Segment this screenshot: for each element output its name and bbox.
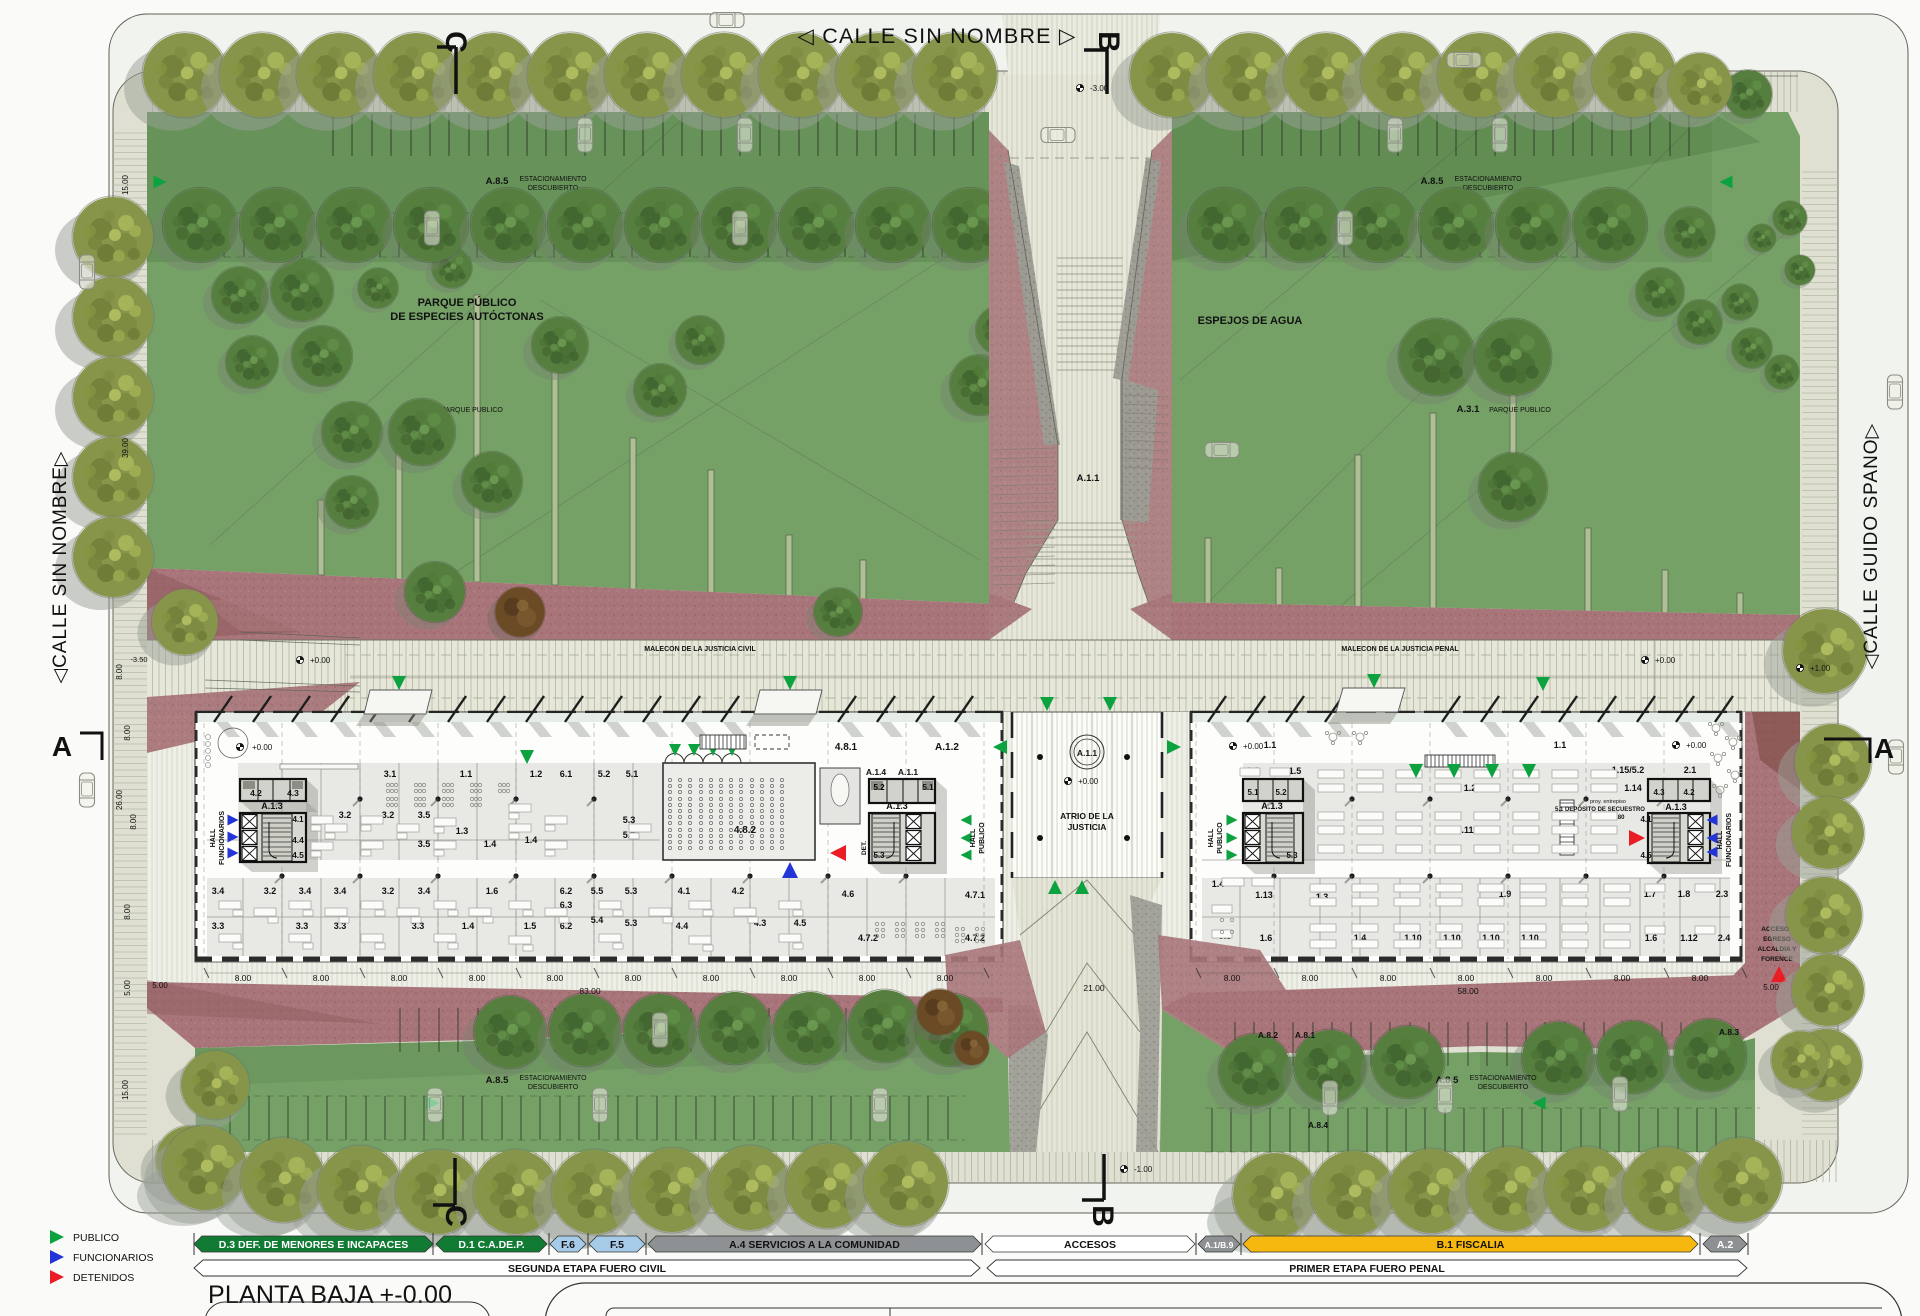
svg-text:5.2: 5.2	[873, 783, 885, 792]
svg-text:A.1/B.9: A.1/B.9	[1205, 1240, 1234, 1250]
svg-text:5.3: 5.3	[1286, 851, 1298, 860]
svg-text:A.8.1: A.8.1	[1295, 1030, 1316, 1040]
svg-text:8.00: 8.00	[1302, 973, 1319, 983]
svg-text:2.1: 2.1	[1684, 765, 1697, 775]
svg-text:4.7.1: 4.7.1	[965, 890, 985, 900]
svg-text:A.1.1: A.1.1	[1077, 748, 1098, 758]
svg-text:JUSTICIA: JUSTICIA	[1068, 822, 1107, 832]
svg-text:FUNCIONARIOS: FUNCIONARIOS	[73, 1252, 154, 1264]
svg-text:DESCUBIERTO: DESCUBIERTO	[528, 1084, 579, 1091]
svg-text:3.2: 3.2	[339, 810, 352, 820]
svg-text:proy. entrepiso: proy. entrepiso	[1590, 799, 1626, 805]
svg-text:MALECON DE LA JUSTICIA CIVIL: MALECON DE LA JUSTICIA CIVIL	[644, 646, 756, 653]
svg-text:ESPEJOS DE AGUA: ESPEJOS DE AGUA	[1198, 315, 1303, 327]
svg-text:8.00: 8.00	[703, 973, 720, 983]
svg-text:5.1: 5.1	[922, 783, 934, 792]
svg-text:PRIMER ETAPA FUERO PENAL: PRIMER ETAPA FUERO PENAL	[1289, 1263, 1445, 1275]
svg-text:1.4: 1.4	[525, 835, 538, 845]
svg-text:1.5: 1.5	[1289, 766, 1302, 776]
svg-text:8.00: 8.00	[781, 973, 798, 983]
svg-text:+0.00: +0.00	[310, 656, 331, 665]
svg-text:B: B	[1086, 1205, 1119, 1227]
svg-text:3.4: 3.4	[334, 886, 347, 896]
svg-text:+0.00: +0.00	[1686, 741, 1707, 750]
svg-text:4.8.1: 4.8.1	[835, 742, 858, 753]
svg-text:8.00: 8.00	[1692, 973, 1709, 983]
svg-text:A.8.5: A.8.5	[486, 176, 509, 187]
svg-text:15.00: 15.00	[121, 174, 130, 195]
svg-text:+0.00: +0.00	[1655, 656, 1676, 665]
svg-text:ESTACIONAMIENTO: ESTACIONAMIENTO	[1454, 176, 1522, 183]
svg-text:4.1: 4.1	[292, 815, 304, 824]
svg-text:-3.50: -3.50	[130, 655, 147, 664]
svg-text:6.1: 6.1	[560, 769, 573, 779]
svg-text:DET.: DET.	[861, 841, 868, 855]
svg-text:2.3: 2.3	[1716, 889, 1729, 899]
svg-text:4.5: 4.5	[292, 850, 304, 860]
svg-text:5.00: 5.00	[152, 981, 168, 990]
svg-text:PARQUE PÚBLICO: PARQUE PÚBLICO	[418, 296, 517, 309]
svg-text:1.4: 1.4	[484, 839, 497, 849]
svg-text:A.1.1: A.1.1	[1077, 473, 1100, 484]
svg-text:3.5: 3.5	[418, 839, 431, 849]
svg-text:15.00: 15.00	[121, 1079, 130, 1100]
svg-text:ACCESOS: ACCESOS	[1064, 1239, 1116, 1251]
svg-text:5.00: 5.00	[123, 980, 132, 996]
svg-text:8.00: 8.00	[859, 973, 876, 983]
svg-text:5.3: 5.3	[623, 815, 636, 825]
svg-text:ATRIO DE LA: ATRIO DE LA	[1060, 811, 1114, 821]
svg-text:A.1.3: A.1.3	[1665, 802, 1687, 812]
svg-text:A.4 SERVICIOS A LA COMUNIDAD: A.4 SERVICIOS A LA COMUNIDAD	[729, 1239, 900, 1251]
svg-text:-1.00: -1.00	[1134, 1165, 1153, 1174]
svg-text:A.1.3: A.1.3	[1261, 801, 1283, 811]
svg-text:8.00: 8.00	[625, 973, 642, 983]
svg-text:3.2: 3.2	[382, 810, 395, 820]
svg-text:FUNCIONARIOS: FUNCIONARIOS	[219, 811, 226, 865]
svg-text:6.2: 6.2	[560, 886, 573, 896]
svg-text:ESTACIONAMIENTO: ESTACIONAMIENTO	[1469, 1075, 1537, 1082]
svg-text:5.4: 5.4	[591, 915, 604, 925]
svg-text:DE ESPECIES AUTÓCTONAS: DE ESPECIES AUTÓCTONAS	[390, 310, 543, 323]
svg-text:5.3: 5.3	[873, 851, 885, 860]
svg-text:4.4: 4.4	[676, 921, 689, 931]
svg-text:4.7.2: 4.7.2	[858, 933, 878, 943]
svg-text:DESCUBIERTO: DESCUBIERTO	[1463, 185, 1514, 192]
svg-text:PUBLICO: PUBLICO	[73, 1232, 119, 1244]
svg-text:3.1: 3.1	[384, 769, 397, 779]
svg-text:D.3 DEF. DE MENORES E INCAPACE: D.3 DEF. DE MENORES E INCAPACES	[219, 1239, 408, 1251]
svg-text:A.8.2: A.8.2	[1258, 1030, 1279, 1040]
svg-text:A.8.3: A.8.3	[1719, 1027, 1740, 1037]
svg-text:4.2: 4.2	[732, 886, 745, 896]
svg-text:1.14: 1.14	[1624, 783, 1642, 793]
svg-text:3.5: 3.5	[418, 810, 431, 820]
svg-text:4.1: 4.1	[1640, 815, 1652, 824]
svg-text:8.00: 8.00	[235, 973, 252, 983]
svg-text:8.00: 8.00	[1536, 973, 1553, 983]
svg-text:D.1 C.A.DE.P.: D.1 C.A.DE.P.	[458, 1239, 524, 1251]
svg-text:+1.00: +1.00	[1810, 664, 1831, 673]
svg-text:4.8.2: 4.8.2	[734, 825, 757, 836]
svg-text:ESTACIONAMIENTO: ESTACIONAMIENTO	[519, 1075, 587, 1082]
svg-text:A.2: A.2	[1717, 1239, 1734, 1251]
svg-text:1.6: 1.6	[1260, 933, 1273, 943]
svg-text:4.4: 4.4	[292, 835, 304, 845]
svg-text:21.00: 21.00	[1083, 983, 1105, 993]
svg-text:8.00: 8.00	[391, 973, 408, 983]
svg-text:5.3: 5.3	[625, 886, 638, 896]
svg-text:FUNCIONARIOS: FUNCIONARIOS	[1726, 813, 1733, 867]
svg-text:3.4: 3.4	[299, 886, 312, 896]
svg-text:F.6: F.6	[561, 1239, 575, 1251]
svg-text:C: C	[439, 1205, 472, 1227]
svg-text:58.00: 58.00	[1457, 986, 1479, 996]
svg-text:8.00: 8.00	[1224, 973, 1241, 983]
svg-text:PARQUE PUBLICO: PARQUE PUBLICO	[1489, 407, 1551, 414]
svg-text:4.6: 4.6	[842, 889, 855, 899]
svg-text:DETENIDOS: DETENIDOS	[73, 1272, 134, 1284]
svg-text:5.00: 5.00	[1763, 983, 1779, 992]
svg-text:+0.00: +0.00	[1243, 742, 1264, 751]
svg-text:83.00: 83.00	[579, 986, 601, 996]
svg-text:◁CALLE GUIDO SPANO▷: ◁CALLE GUIDO SPANO▷	[1861, 423, 1882, 669]
svg-text:4.3: 4.3	[287, 788, 299, 798]
svg-text:MALECON DE LA JUSTICIA PENAL: MALECON DE LA JUSTICIA PENAL	[1341, 646, 1459, 653]
svg-text:HALL: HALL	[210, 828, 217, 847]
svg-text:A.1.1: A.1.1	[898, 767, 919, 777]
svg-text:1.3: 1.3	[456, 826, 469, 836]
svg-text:8.00: 8.00	[115, 664, 124, 680]
svg-text:HALL: HALL	[1208, 828, 1215, 847]
svg-text:5.3: 5.3	[625, 918, 638, 928]
svg-text:4.2: 4.2	[1683, 788, 1695, 797]
svg-text:+0.00: +0.00	[1078, 777, 1099, 786]
svg-text:HALL: HALL	[970, 828, 977, 847]
svg-text:8.00: 8.00	[129, 814, 138, 830]
svg-text:8.00: 8.00	[1458, 973, 1475, 983]
svg-text:5.1: 5.1	[626, 769, 639, 779]
svg-text:8.00: 8.00	[547, 973, 564, 983]
svg-text:1.12: 1.12	[1680, 933, 1698, 943]
svg-text:A.3.1: A.3.1	[1457, 404, 1480, 415]
svg-text:◁CALLE SIN NOMBRE▷: ◁CALLE SIN NOMBRE▷	[50, 450, 71, 683]
svg-text:8.00: 8.00	[1380, 973, 1397, 983]
svg-text:A.1.4: A.1.4	[866, 767, 887, 777]
svg-text:5.2: 5.2	[598, 769, 611, 779]
svg-text:A.1.3: A.1.3	[261, 801, 283, 811]
svg-text:1.6: 1.6	[486, 886, 499, 896]
svg-text:PLANTA BAJA +-0.00: PLANTA BAJA +-0.00	[208, 1281, 452, 1309]
svg-text:SEGUNDA ETAPA FUERO CIVIL: SEGUNDA ETAPA FUERO CIVIL	[508, 1263, 667, 1275]
svg-text:1.1: 1.1	[460, 769, 473, 779]
svg-text:PARQUE PUBLICO: PARQUE PUBLICO	[441, 407, 503, 414]
svg-text:A.8.5: A.8.5	[1421, 176, 1444, 187]
svg-text:PUBLICO: PUBLICO	[1217, 822, 1224, 854]
svg-text:5.5: 5.5	[591, 886, 604, 896]
svg-text:A: A	[1874, 733, 1894, 764]
svg-text:8.00: 8.00	[313, 973, 330, 983]
svg-text:4.5: 4.5	[1640, 851, 1652, 860]
svg-text:8.00: 8.00	[123, 725, 132, 741]
svg-text:◁ CALLE SIN NOMBRE ▷: ◁ CALLE SIN NOMBRE ▷	[797, 24, 1076, 48]
svg-text:HALL: HALL	[1717, 830, 1724, 849]
svg-text:4.5: 4.5	[794, 918, 807, 928]
svg-text:3.3: 3.3	[212, 921, 225, 931]
svg-text:B.1 FISCALIA: B.1 FISCALIA	[1437, 1239, 1505, 1251]
svg-text:1.2: 1.2	[530, 769, 543, 779]
svg-text:8.00: 8.00	[1614, 973, 1631, 983]
svg-text:4.3: 4.3	[1653, 788, 1665, 797]
svg-text:5.2: 5.2	[1275, 788, 1287, 797]
svg-text:1.4: 1.4	[462, 921, 475, 931]
svg-text:F.5: F.5	[610, 1239, 624, 1251]
svg-text:3.2: 3.2	[382, 886, 395, 896]
svg-text:DESCUBIERTO: DESCUBIERTO	[1478, 1084, 1529, 1091]
svg-text:1.6: 1.6	[1645, 933, 1658, 943]
svg-text:3.4: 3.4	[418, 886, 431, 896]
svg-text:5.1: 5.1	[1247, 788, 1259, 797]
svg-text:26.00: 26.00	[115, 789, 124, 810]
svg-text:1.8: 1.8	[1678, 889, 1691, 899]
svg-text:A.1.3: A.1.3	[886, 801, 908, 811]
svg-text:A: A	[52, 731, 72, 762]
svg-text:4.2: 4.2	[250, 788, 262, 798]
svg-text:4.1: 4.1	[678, 886, 691, 896]
svg-text:3.3: 3.3	[296, 921, 309, 931]
svg-text:3.4: 3.4	[212, 886, 225, 896]
svg-text:39.00: 39.00	[121, 437, 130, 458]
svg-text:1.5: 1.5	[524, 921, 537, 931]
svg-text:A.8.4: A.8.4	[1308, 1120, 1329, 1130]
svg-text:1.1: 1.1	[1264, 740, 1277, 750]
svg-text:ESTACIONAMIENTO: ESTACIONAMIENTO	[519, 176, 587, 183]
svg-text:1.13: 1.13	[1255, 890, 1273, 900]
svg-text:3.2: 3.2	[264, 886, 277, 896]
svg-text:2.4: 2.4	[1718, 933, 1731, 943]
svg-text:8.00: 8.00	[937, 973, 954, 983]
svg-text:PUBLICO: PUBLICO	[979, 822, 986, 854]
svg-text:+0.00: +0.00	[252, 743, 273, 752]
svg-text:8.00: 8.00	[469, 973, 486, 983]
svg-text:A.1.2: A.1.2	[935, 742, 959, 753]
svg-text:8.00: 8.00	[123, 904, 132, 920]
svg-text:1.1: 1.1	[1554, 740, 1567, 750]
